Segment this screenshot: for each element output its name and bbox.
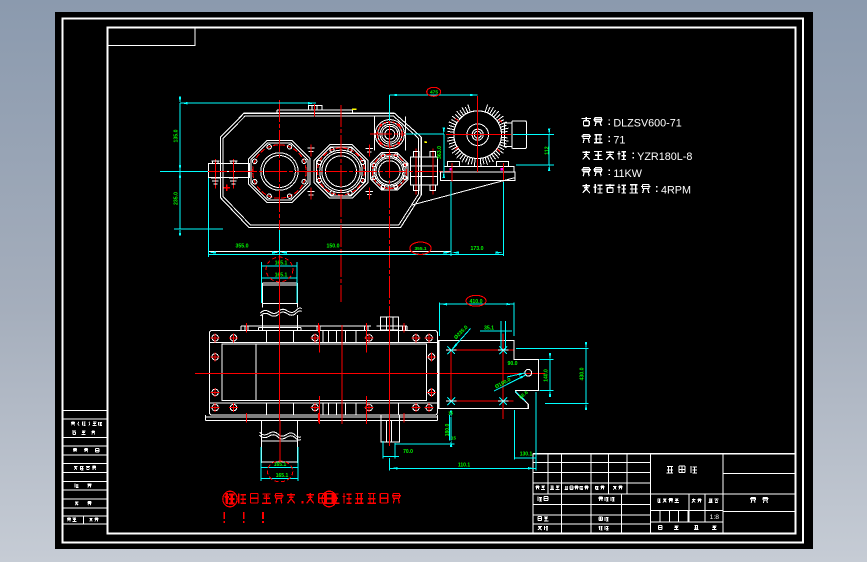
svg-text:110.1: 110.1: [458, 462, 470, 468]
svg-text:355.1: 355.1: [414, 246, 426, 252]
svg-text:130.1: 130.1: [520, 451, 533, 457]
svg-text:1:8: 1:8: [710, 514, 720, 521]
svg-text:150.0: 150.0: [327, 244, 340, 250]
svg-text:430.0: 430.0: [580, 367, 586, 380]
svg-text:180.0: 180.0: [445, 424, 451, 437]
svg-text:165.1: 165.1: [274, 462, 287, 468]
svg-text:363.0: 363.0: [437, 146, 443, 159]
svg-text:410.0: 410.0: [470, 299, 483, 305]
svg-text:475: 475: [430, 90, 438, 96]
svg-text:355.0: 355.0: [236, 244, 249, 250]
svg-text:90.0: 90.0: [507, 361, 517, 367]
svg-text:165.1: 165.1: [276, 473, 289, 479]
svg-text:173.0: 173.0: [471, 246, 484, 252]
svg-text:11KW: 11KW: [613, 168, 642, 180]
svg-text:4RPM: 4RPM: [661, 185, 691, 197]
svg-text:135.0: 135.0: [173, 129, 179, 142]
svg-text:71: 71: [613, 134, 625, 146]
svg-text:165.1: 165.1: [275, 272, 288, 278]
svg-text:112: 112: [544, 146, 550, 154]
svg-text:15: 15: [451, 436, 456, 441]
svg-text:140.0: 140.0: [544, 369, 550, 382]
svg-text:235.0: 235.0: [173, 192, 179, 205]
svg-text:165.1: 165.1: [275, 261, 288, 267]
svg-text:YZR180L-8: YZR180L-8: [637, 151, 692, 163]
svg-text:35.1: 35.1: [484, 325, 494, 331]
svg-text:DLZSV600-71: DLZSV600-71: [613, 118, 681, 130]
svg-text:15: 15: [448, 411, 453, 416]
svg-text:70.0: 70.0: [403, 449, 413, 455]
